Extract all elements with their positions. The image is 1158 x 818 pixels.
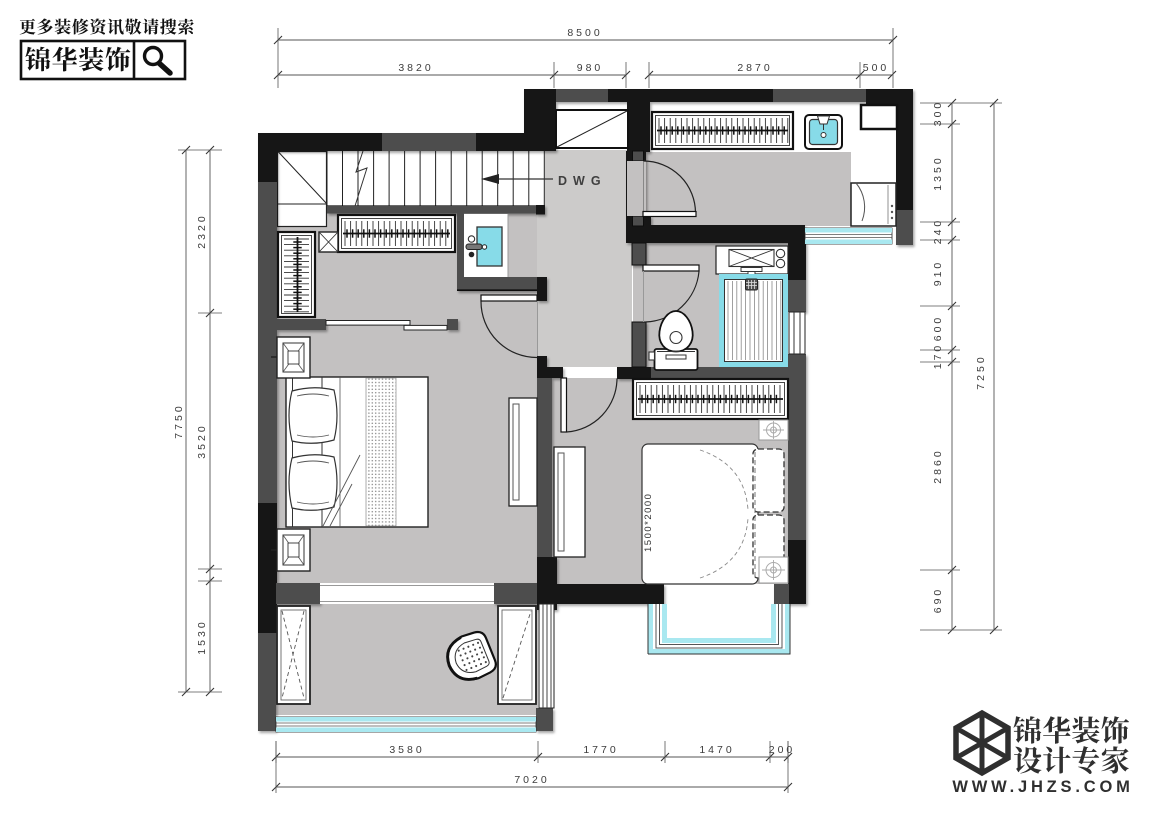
svg-text:2870: 2870: [737, 62, 772, 74]
svg-text:170: 170: [932, 343, 944, 370]
svg-text:1470: 1470: [699, 744, 734, 756]
svg-text:980: 980: [577, 62, 604, 74]
svg-text:WWW.JHZS.COM: WWW.JHZS.COM: [952, 778, 1133, 796]
svg-text:1500*2000: 1500*2000: [643, 493, 654, 552]
svg-text:500: 500: [863, 62, 890, 74]
svg-text:910: 910: [932, 260, 944, 287]
svg-text:690: 690: [932, 587, 944, 614]
svg-text:7020: 7020: [514, 774, 549, 786]
svg-text:3520: 3520: [196, 423, 208, 458]
svg-text:240: 240: [932, 218, 944, 245]
svg-text:300: 300: [932, 100, 944, 127]
svg-text:600: 600: [932, 315, 944, 342]
svg-text:2320: 2320: [196, 213, 208, 248]
svg-text:8500: 8500: [567, 27, 602, 39]
svg-text:1350: 1350: [932, 155, 944, 190]
svg-text:3580: 3580: [389, 744, 424, 756]
svg-text:2860: 2860: [932, 448, 944, 483]
svg-text:1770: 1770: [583, 744, 618, 756]
svg-text:7750: 7750: [173, 403, 185, 438]
svg-text:1530: 1530: [196, 619, 208, 654]
svg-text:3820: 3820: [398, 62, 433, 74]
svg-text:7250: 7250: [975, 354, 987, 389]
svg-text:200: 200: [769, 744, 796, 756]
svg-text:DWG: DWG: [558, 174, 607, 188]
